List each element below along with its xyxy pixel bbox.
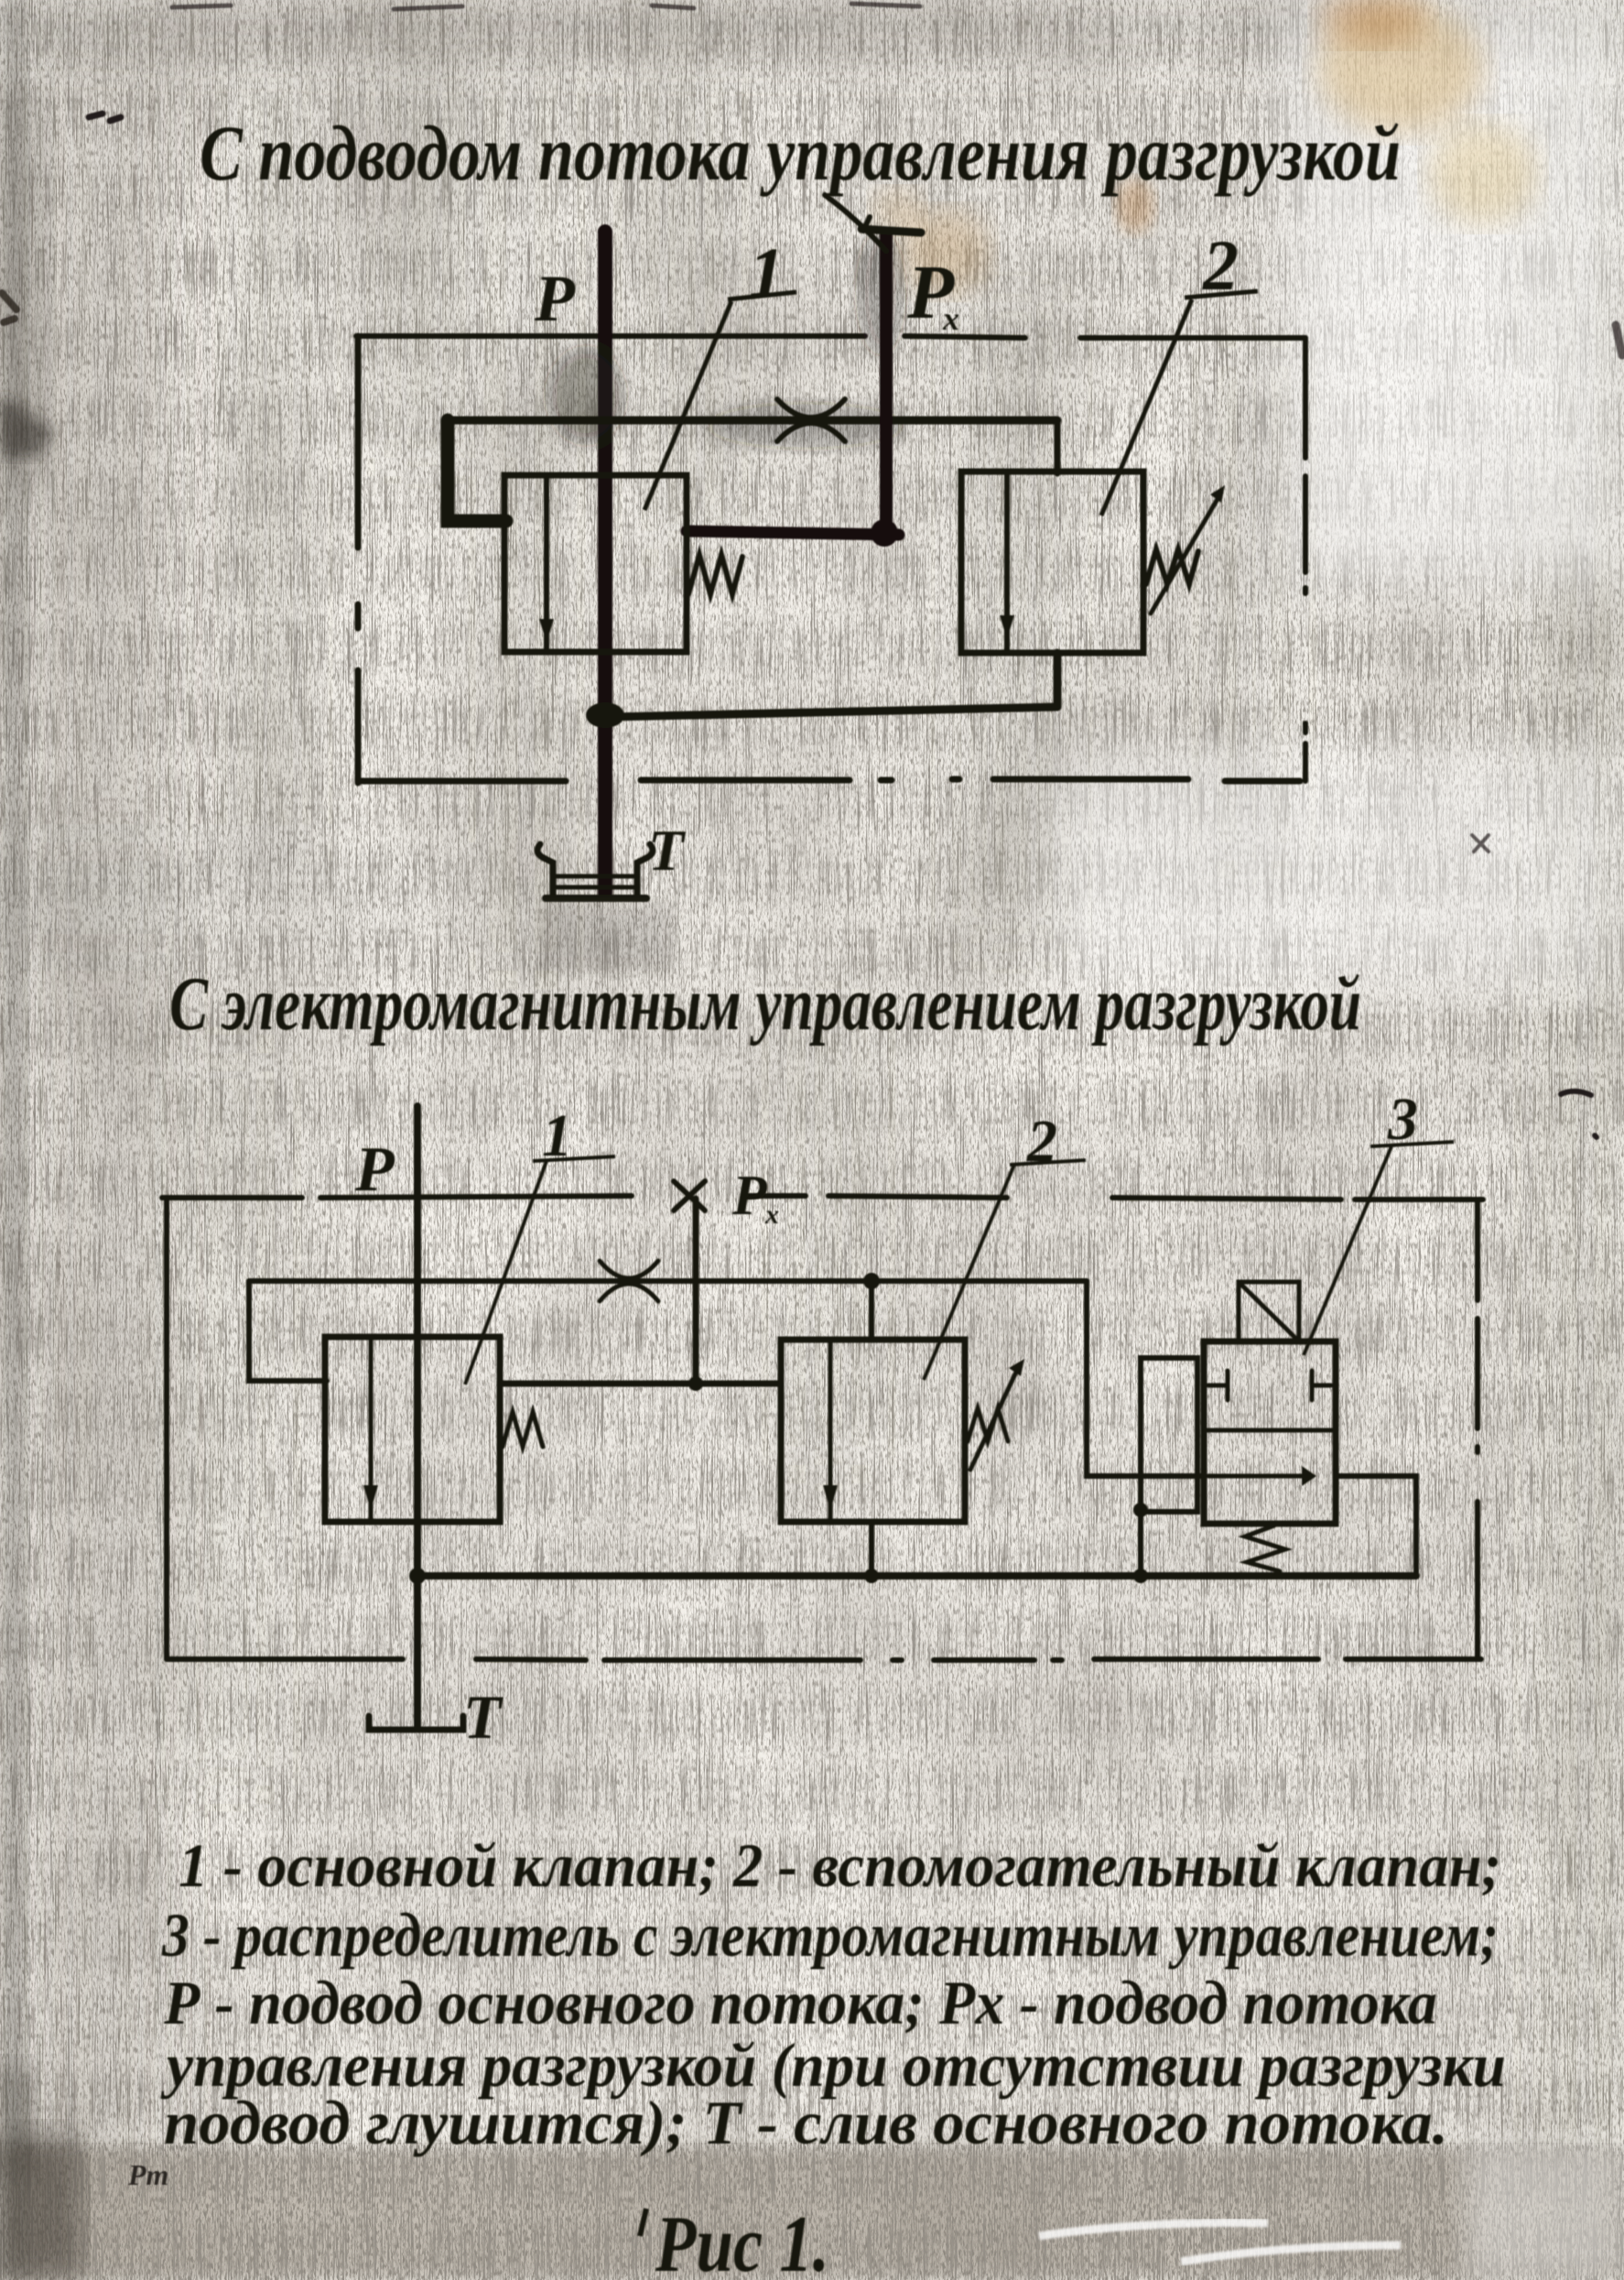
svg-text:С подводом потока управления р: С подводом потока управления разгрузкой: [200, 109, 1401, 197]
svg-text:1 - основной клапан; 2 - всп: 1 - основной клапан; 2 - вспомогательный…: [179, 1830, 1501, 1900]
svg-text:T: T: [463, 1682, 503, 1752]
svg-text:Рис 1.: Рис 1.: [655, 2200, 829, 2280]
svg-text:С электромагнитным управлением: С электромагнитным управлением разгрузко…: [169, 961, 1361, 1047]
svg-text:3 - распределитель с электрома: 3 - распределитель с электромагнитным уп…: [161, 1900, 1499, 1970]
svg-text:T: T: [648, 818, 687, 883]
svg-text:1: 1: [749, 233, 785, 312]
svg-text:P: P: [354, 1135, 395, 1205]
svg-text:Рт: Рт: [127, 2158, 168, 2191]
svg-text:x: x: [942, 300, 959, 337]
svg-text:P: P: [534, 262, 576, 335]
svg-text:подвод глушится); Т - слив осн: подвод глушится); Т - слив основного пот…: [164, 2088, 1448, 2157]
svg-text:x: x: [764, 1200, 779, 1230]
svg-text:P: P: [731, 1165, 768, 1227]
svg-text:Р - подвод основного потока; Р: Р - подвод основного потока; Рх - подвод…: [163, 1968, 1437, 2037]
